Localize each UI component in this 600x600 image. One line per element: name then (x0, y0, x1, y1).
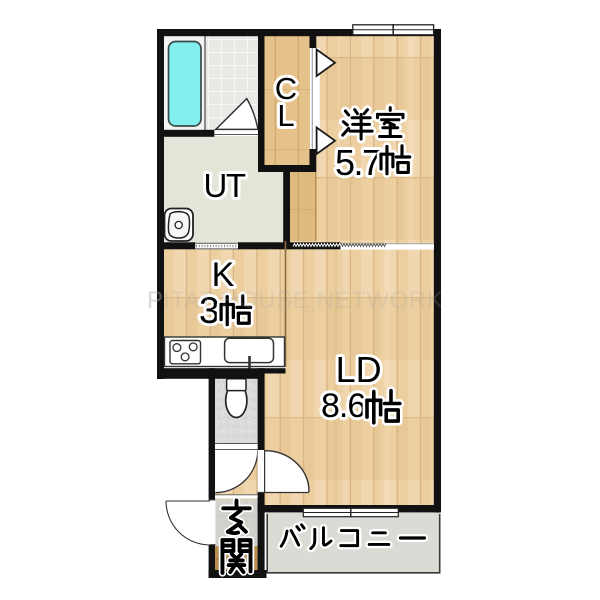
svg-text:LD: LD (336, 349, 382, 390)
svg-text:UT: UT (204, 167, 246, 204)
svg-text:P: P (147, 287, 164, 314)
svg-text:5.7: 5.7 (335, 142, 381, 183)
svg-text:8.6: 8.6 (321, 387, 365, 425)
svg-text:ITAT HOUSE NETWORK: ITAT HOUSE NETWORK (163, 287, 443, 314)
svg-text:L: L (277, 98, 294, 133)
